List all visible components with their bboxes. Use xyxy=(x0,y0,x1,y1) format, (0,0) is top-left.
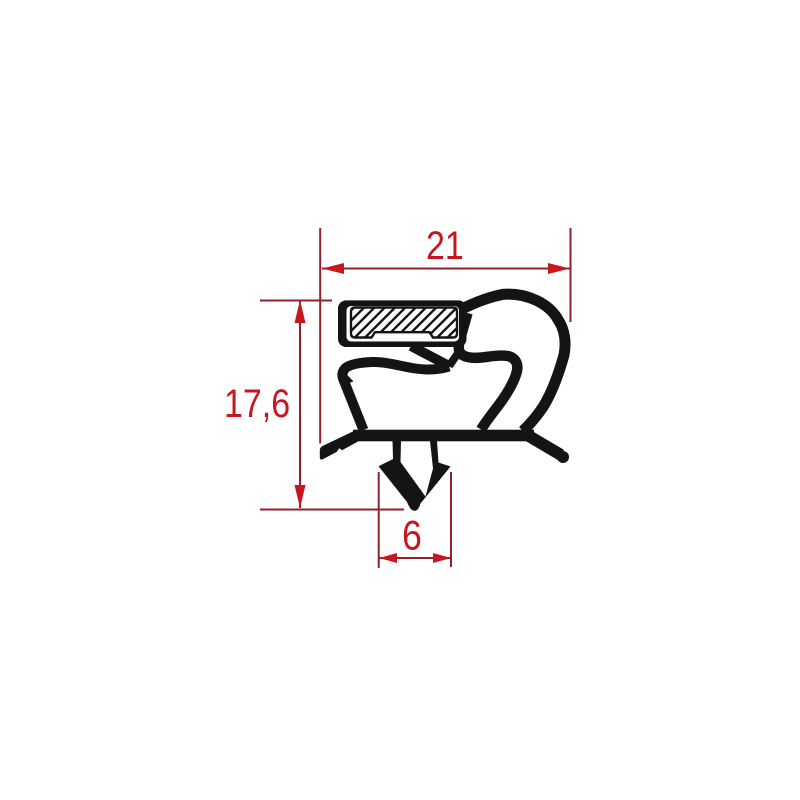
svg-text:21: 21 xyxy=(426,222,464,267)
svg-text:17,6: 17,6 xyxy=(224,380,290,425)
svg-text:6: 6 xyxy=(402,513,422,559)
